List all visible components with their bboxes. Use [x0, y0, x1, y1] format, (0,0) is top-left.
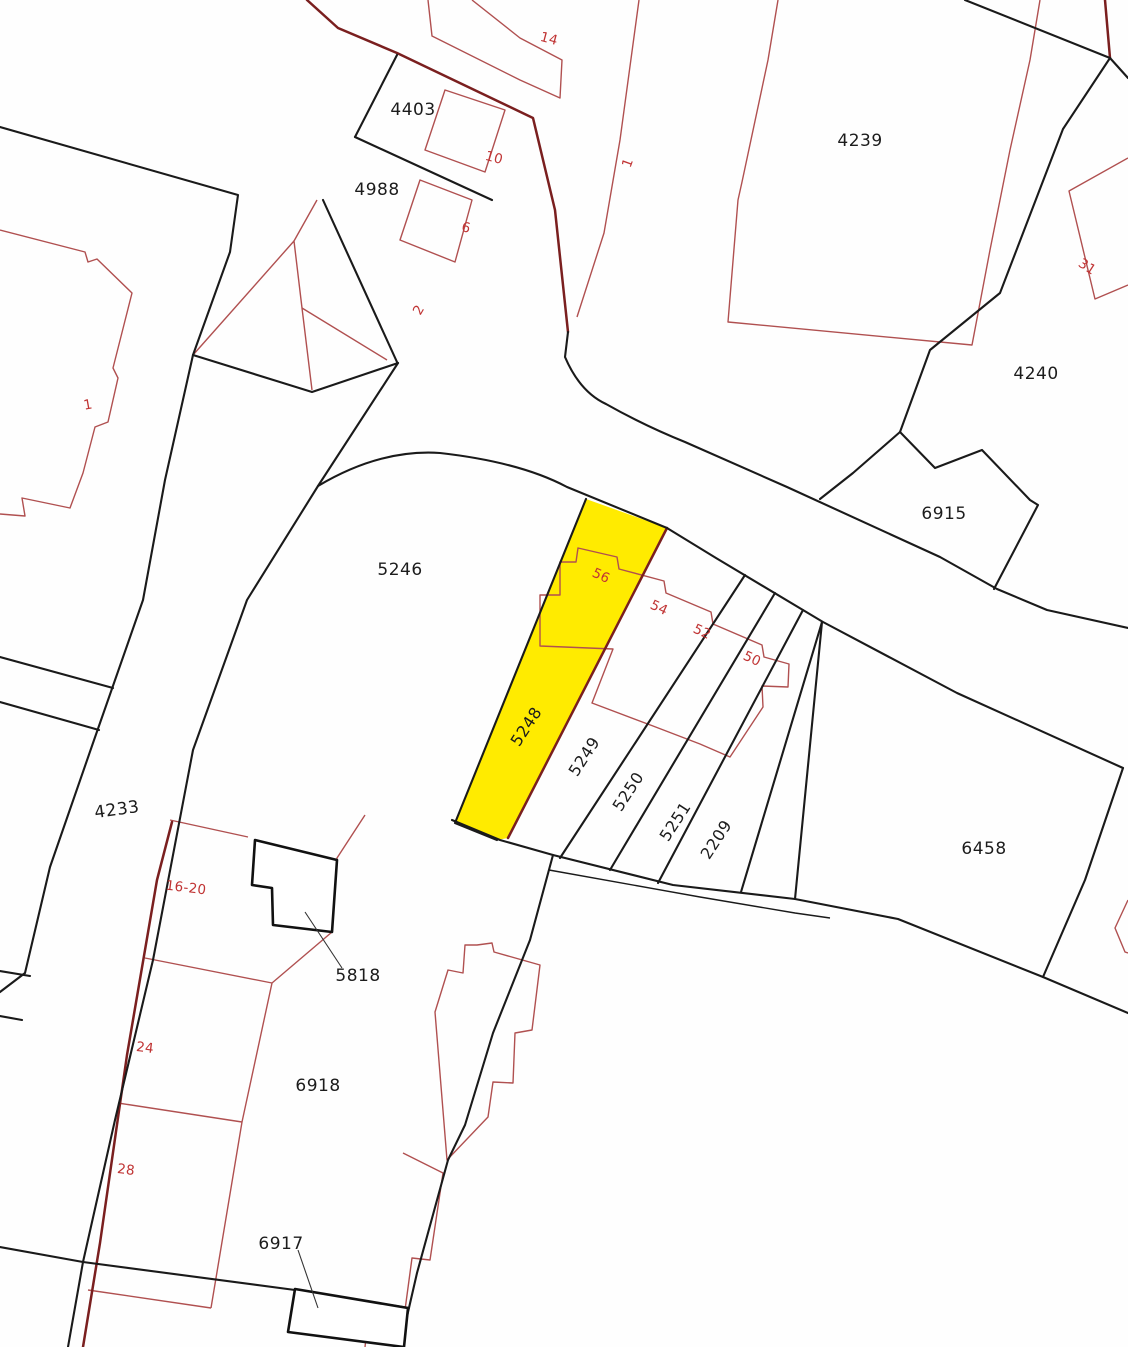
building-house-31 — [1069, 158, 1128, 299]
building-4239 — [728, 0, 1040, 345]
divide-5251-2209 — [658, 610, 803, 883]
label-4239: 4239 — [837, 131, 882, 151]
building-house-1-street — [577, 0, 639, 317]
label-31: 31 — [1075, 255, 1099, 278]
label-4240: 4240 — [1013, 364, 1058, 384]
road-right-edge — [68, 363, 398, 1347]
building-house-2-edge — [193, 241, 294, 355]
divide-4988-south — [323, 200, 397, 362]
divide-4239-4240 — [900, 58, 1110, 432]
label-5249: 5249 — [565, 733, 604, 779]
label-5818: 5818 — [335, 966, 380, 986]
parcel-16-20-top — [170, 820, 248, 837]
label-2209: 2209 — [697, 816, 736, 862]
label-54: 54 — [648, 597, 671, 619]
label-1: 1 — [82, 396, 94, 413]
strips-bottom-6458-south — [452, 820, 1128, 1013]
parcel-24-top — [145, 958, 272, 983]
parcel-column-east — [211, 983, 272, 1308]
map-canvas: 4403498842394240691552464233645858186918… — [0, 0, 1128, 1347]
street-edge-southwest — [307, 0, 568, 332]
label-4403: 4403 — [390, 100, 435, 120]
building-house-2-base — [302, 308, 387, 360]
label-6458: 6458 — [961, 839, 1006, 859]
parcel-24-28-divide — [118, 1103, 242, 1122]
building-house-6 — [400, 180, 472, 262]
parcel-28-bottom — [88, 1290, 211, 1308]
west-stub-1 — [0, 657, 113, 688]
label-50: 50 — [741, 648, 764, 670]
label-4233: 4233 — [93, 797, 141, 823]
boundary-5246-north — [318, 453, 1123, 768]
label-5246: 5246 — [377, 560, 422, 580]
west-stub-4 — [0, 1016, 22, 1020]
label-5251: 5251 — [656, 798, 695, 844]
boundary-6915-west — [820, 432, 900, 499]
label-6917: 6917 — [258, 1234, 303, 1254]
label-14: 14 — [538, 29, 559, 49]
label-2: 2 — [410, 302, 428, 318]
label-4988: 4988 — [354, 180, 399, 200]
building-5818 — [252, 840, 337, 932]
building-house-2 — [294, 200, 317, 390]
lane-lower-line — [549, 870, 830, 918]
building-6917 — [288, 1289, 408, 1347]
label-16-20: 16-20 — [165, 878, 207, 899]
label-6918: 6918 — [295, 1076, 340, 1096]
label-6915: 6915 — [921, 504, 966, 524]
west-stub-2 — [0, 702, 99, 730]
label-1: 1 — [619, 156, 637, 170]
boundary-6458-east — [1043, 768, 1123, 977]
boundary-topleft — [0, 127, 238, 355]
building-house-14 — [428, 0, 562, 98]
boundary-4403-west — [355, 55, 397, 137]
boundary-cluster-bottom — [193, 355, 398, 392]
cadastral-map: 4403498842394240691552464233645858186918… — [0, 0, 1128, 1347]
label-24: 24 — [135, 1039, 155, 1057]
label-6: 6 — [460, 219, 472, 236]
label-52: 52 — [691, 621, 714, 643]
building-right-edge-notch — [1115, 900, 1128, 953]
label-28: 28 — [116, 1161, 136, 1179]
boundary-6918-east — [400, 855, 553, 1347]
building-house-1-left — [0, 230, 132, 516]
street-edge-31 — [1105, 0, 1110, 58]
